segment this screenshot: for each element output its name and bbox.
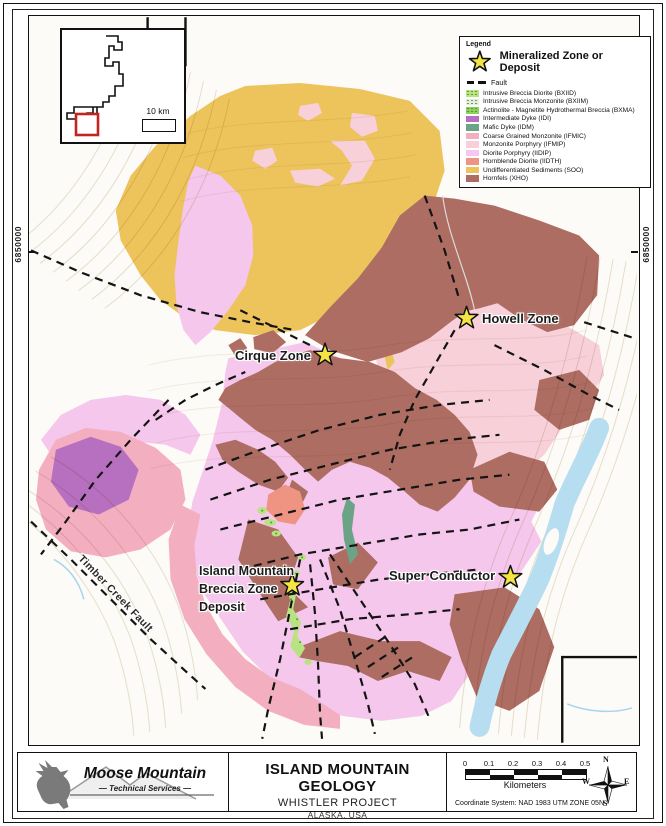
cirque-zone-label: Cirque Zone bbox=[235, 348, 311, 363]
legend-item: Intrusive Breccia Diorite (BXIID) bbox=[466, 89, 644, 98]
compass-n: N bbox=[603, 755, 609, 764]
swatch-idm bbox=[466, 124, 479, 131]
logo-tagline: — Technical Services — bbox=[64, 784, 226, 793]
grid-label-left: 6850000 bbox=[13, 226, 23, 263]
swatch-idi bbox=[466, 116, 479, 123]
super-conductor-label: Super Conductor bbox=[389, 568, 495, 583]
legend-item: Intrusive Breccia Monzonite (BXIIM) bbox=[466, 98, 644, 107]
map-sheet: Howell Zone Cirque Zone Island Mountain … bbox=[0, 0, 666, 826]
grid-tick-left bbox=[28, 251, 35, 253]
grid-label-right: 6850000 bbox=[641, 226, 651, 263]
inset-scale-bar bbox=[142, 119, 176, 132]
legend-fault-label: Fault bbox=[491, 78, 507, 87]
swatch-soo bbox=[466, 167, 479, 174]
swatch-bxma bbox=[466, 107, 479, 114]
logo-text: Moose Mountain — Technical Services — bbox=[64, 765, 226, 793]
coordinate-system-note: Coordinate System: NAD 1983 UTM ZONE 05N bbox=[455, 800, 604, 807]
map-extent-box bbox=[76, 114, 98, 135]
scale-tick-labels: 0 0.1 0.2 0.3 0.4 0.5 bbox=[459, 759, 591, 769]
scale-bar-graphic bbox=[465, 769, 587, 780]
scale-unit-label: Kilometers bbox=[465, 780, 585, 790]
legend-item: Undifferentiated Sediments (SOO) bbox=[466, 166, 644, 175]
legend-star-label: Mineralized Zone or Deposit bbox=[500, 50, 644, 74]
legend-title: Legend bbox=[466, 41, 644, 48]
swatch-iidip bbox=[466, 150, 479, 157]
logo-panel: Moose Mountain — Technical Services — bbox=[17, 752, 229, 812]
howell-zone-label: Howell Zone bbox=[482, 311, 559, 326]
north-arrow: N E S W bbox=[586, 757, 630, 809]
scale-panel: 0 0.1 0.2 0.3 0.4 0.5 Kilometers Coordin… bbox=[446, 752, 637, 812]
legend-fault-row: Fault bbox=[467, 78, 644, 87]
legend-item: Diorite Porphyry (IIDIP) bbox=[466, 149, 644, 158]
swatch-bxiid bbox=[466, 90, 479, 97]
swatch-ifmic bbox=[466, 133, 479, 140]
swatch-ifmip bbox=[466, 141, 479, 148]
map-subtitle: WHISTLER PROJECT bbox=[229, 797, 446, 809]
compass-w: W bbox=[582, 777, 590, 786]
legend-item: Coarse Grained Monzonite (IFMIC) bbox=[466, 132, 644, 141]
grid-tick-right bbox=[631, 251, 638, 253]
compass-s: S bbox=[603, 799, 607, 808]
legend-item: Monzonite Porphyry (IFMIP) bbox=[466, 140, 644, 149]
legend-item: Hornfels (XHO) bbox=[466, 174, 644, 183]
compass-e: E bbox=[624, 777, 629, 786]
inset-scale-label: 10 km bbox=[140, 106, 176, 116]
inset-location-map: 10 km bbox=[60, 28, 186, 144]
logo-name: Moose Mountain bbox=[64, 765, 226, 783]
star-icon bbox=[468, 50, 492, 74]
fault-symbol-icon bbox=[467, 81, 486, 84]
legend-star-row: Mineralized Zone or Deposit bbox=[468, 50, 644, 74]
title-panel: ISLAND MOUNTAIN GEOLOGY WHISTLER PROJECT… bbox=[228, 752, 447, 812]
swatch-xho bbox=[466, 175, 479, 182]
swatch-bxiim bbox=[466, 99, 479, 106]
imbz-label: Island Mountain Breccia Zone Deposit bbox=[199, 562, 294, 616]
swatch-iidth bbox=[466, 158, 479, 165]
legend-item: Actinolite - Magnetite Hydrothermal Brec… bbox=[466, 106, 644, 115]
claim-outline bbox=[67, 36, 123, 119]
legend-panel: Legend Mineralized Zone or Deposit Fault… bbox=[459, 36, 651, 188]
legend-item: Intermediate Dyke (IDI) bbox=[466, 115, 644, 124]
legend-item: Hornblende Diorite (IIDTH) bbox=[466, 157, 644, 166]
map-location: ALASKA, USA bbox=[229, 810, 446, 820]
map-title: ISLAND MOUNTAIN GEOLOGY bbox=[229, 761, 446, 795]
scale-bar: 0 0.1 0.2 0.3 0.4 0.5 Kilometers bbox=[459, 759, 591, 790]
legend-item: Mafic Dyke (IDM) bbox=[466, 123, 644, 132]
